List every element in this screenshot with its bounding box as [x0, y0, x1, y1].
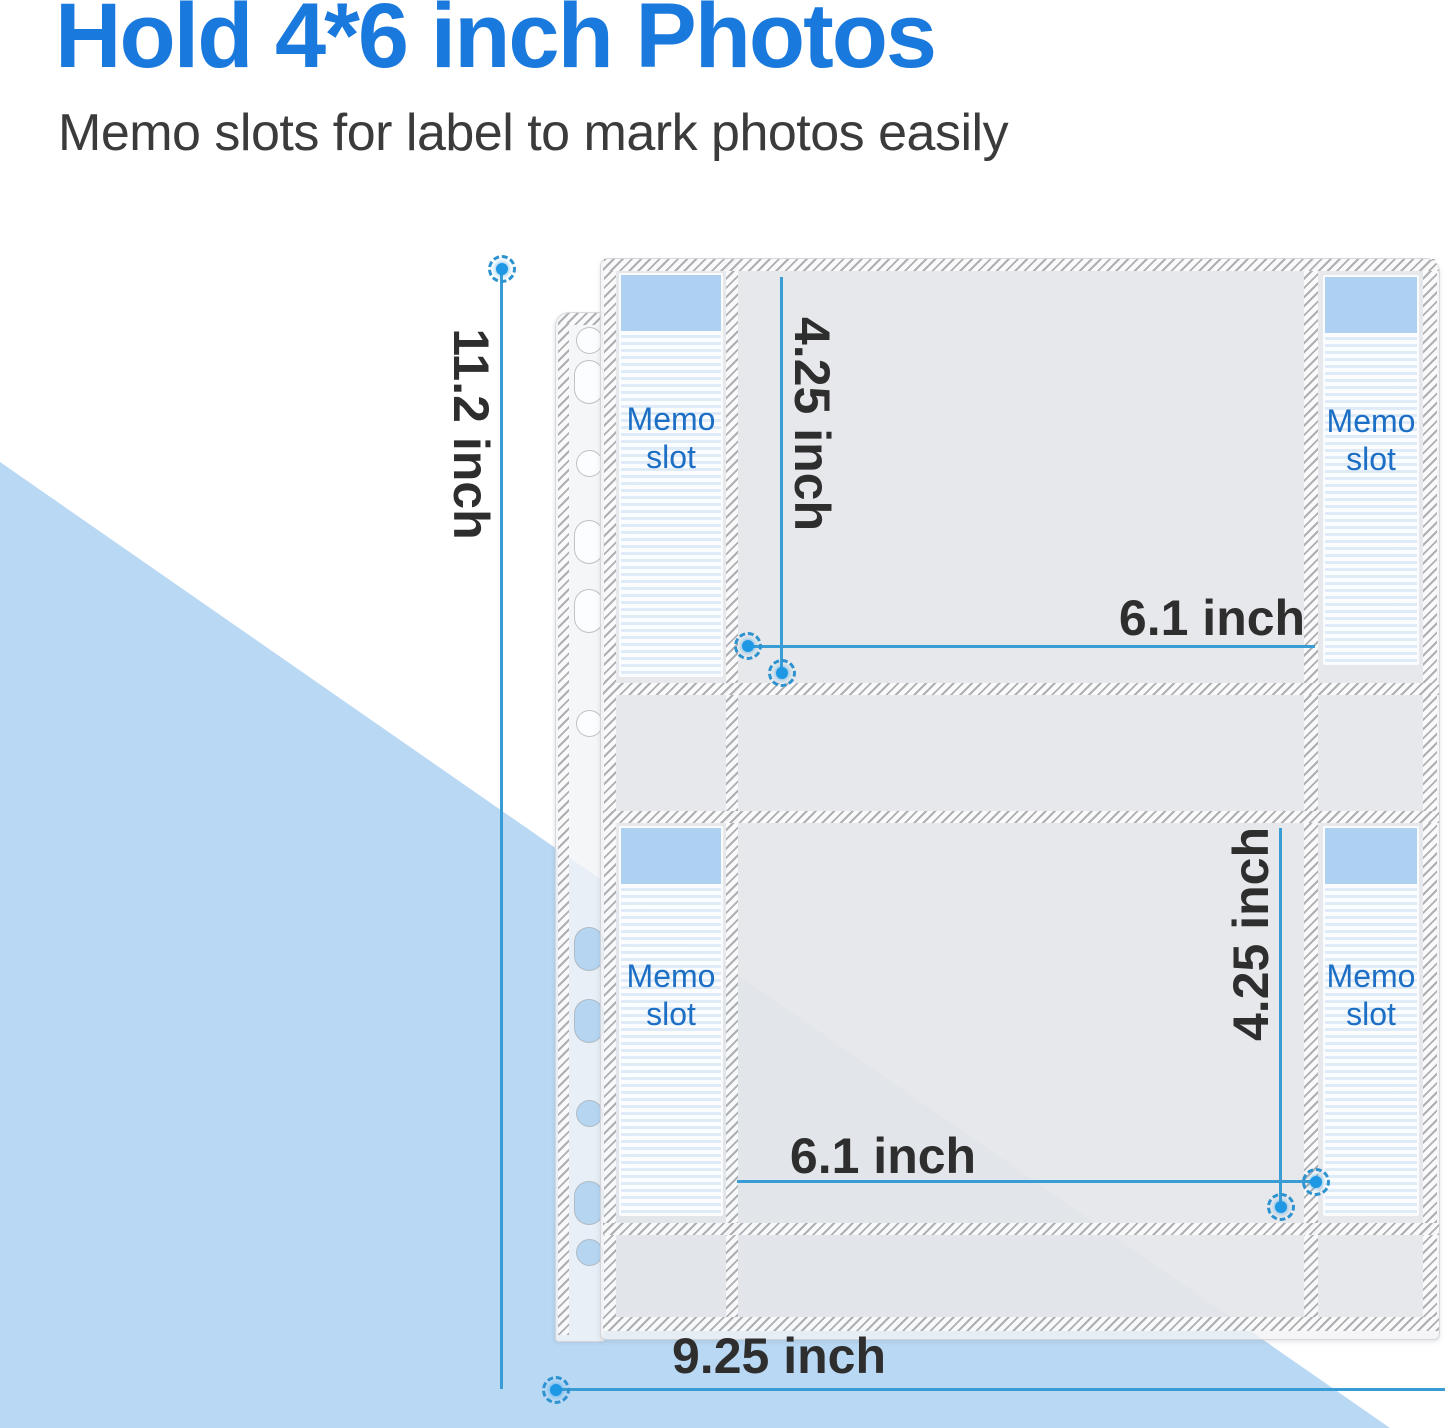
- memo-label-line1: Memo: [627, 958, 716, 994]
- memo-slot-lines: [621, 331, 721, 675]
- memo-label-line1: Memo: [1327, 403, 1416, 439]
- memo-slot-lines: [621, 884, 721, 1214]
- stitch-seam-horizontal: [603, 811, 1439, 823]
- memo-slot-header: [621, 828, 721, 884]
- page-title: Hold 4*6 inch Photos: [55, 0, 935, 82]
- dimension-endpoint: [734, 632, 762, 660]
- dimension-label-bottom-pocket-width: 6.1 inch: [790, 1131, 976, 1181]
- dimension-endpoint: [1267, 1193, 1295, 1221]
- memo-slot-label: Memo slot: [621, 958, 721, 1034]
- dimension-line-top-pocket-height: [780, 277, 783, 673]
- memo-slot-label: Memo slot: [621, 401, 721, 477]
- memo-label-line2: slot: [646, 996, 696, 1032]
- memo-slot-header: [621, 275, 721, 331]
- dimension-line-bottom-pocket-height: [1279, 828, 1282, 1201]
- stitch-seam-horizontal: [603, 259, 1439, 271]
- stitch-seam-horizontal: [603, 683, 1439, 695]
- memo-label-line2: slot: [1346, 996, 1396, 1032]
- binder-hole: [576, 327, 603, 354]
- binder-hole: [576, 450, 603, 477]
- dimension-endpoint: [768, 659, 796, 687]
- memo-slot-top-right: Memo slot: [1323, 275, 1419, 665]
- dimension-endpoint: [542, 1376, 570, 1404]
- page-subtitle: Memo slots for label to mark photos easi…: [58, 103, 1008, 163]
- memo-label-line1: Memo: [627, 401, 716, 437]
- stitch-seam-horizontal: [603, 1223, 1439, 1235]
- memo-slot-header: [1325, 828, 1417, 884]
- memo-slot-lines: [1325, 333, 1417, 663]
- dimension-label-top-pocket-height: 4.25 inch: [787, 317, 837, 531]
- memo-slot-bottom-right: Memo slot: [1323, 826, 1419, 1216]
- memo-slot-lines: [1325, 884, 1417, 1214]
- stitch-seam-vertical: [604, 259, 616, 1329]
- memo-slot-label: Memo slot: [1325, 958, 1417, 1034]
- binder-hole: [576, 1100, 603, 1127]
- memo-slot-bottom-left: Memo slot: [619, 826, 723, 1216]
- dimension-endpoint: [1302, 1168, 1330, 1196]
- memo-slot-top-left: Memo slot: [619, 273, 723, 677]
- dimension-label-top-pocket-width: 6.1 inch: [1119, 593, 1305, 643]
- binder-hole: [576, 710, 603, 737]
- dimension-label-bottom-pocket-height: 4.25 inch: [1226, 827, 1276, 1041]
- stitch-seam: [558, 323, 569, 1335]
- memo-slot-label: Memo slot: [1325, 403, 1417, 479]
- memo-label-line2: slot: [1346, 441, 1396, 477]
- dimension-line-sheet-height: [500, 268, 503, 1389]
- dimension-label-sheet-height: 11.2 inch: [446, 328, 496, 539]
- memo-label-line1: Memo: [1327, 958, 1416, 994]
- dimension-endpoint: [488, 255, 516, 283]
- binder-strip: [555, 312, 604, 1342]
- binder-hole: [576, 1239, 603, 1266]
- dimension-label-sheet-width: 9.25 inch: [672, 1331, 886, 1381]
- stitch-seam-vertical: [726, 259, 738, 1329]
- stitch-seam-vertical: [1423, 259, 1437, 1329]
- memo-label-line2: slot: [646, 439, 696, 475]
- dimension-line-sheet-width: [556, 1388, 1445, 1391]
- product-infographic: Hold 4*6 inch Photos Memo slots for labe…: [0, 0, 1445, 1428]
- memo-slot-header: [1325, 277, 1417, 333]
